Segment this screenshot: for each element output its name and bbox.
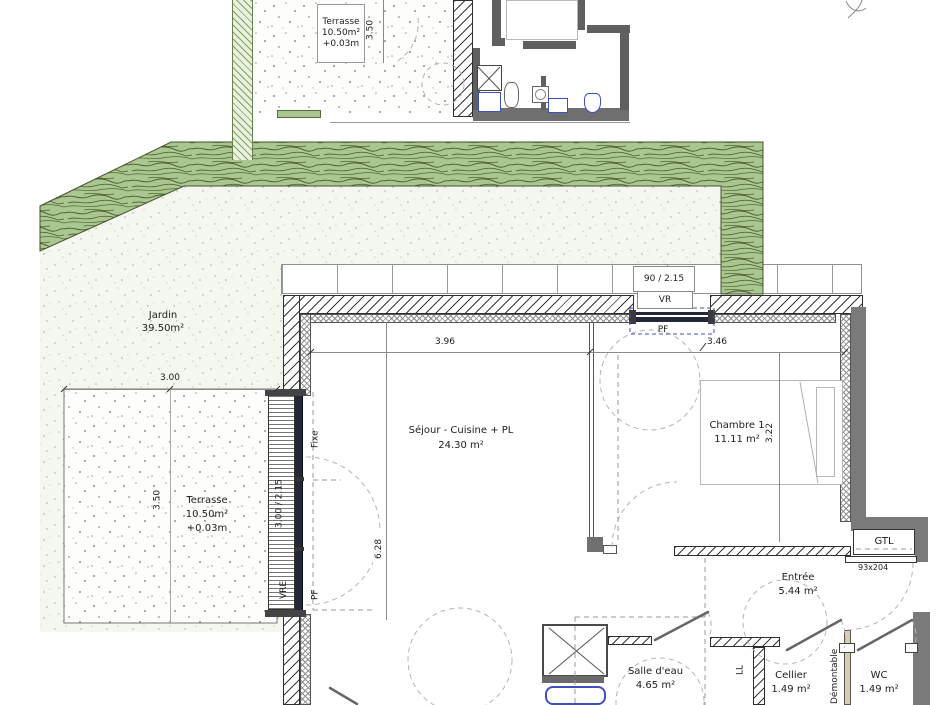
demontable-label: Démontable <box>829 648 842 705</box>
chambre-dim-width: 3.46 <box>682 337 752 348</box>
wall-salle-eau <box>608 636 652 645</box>
chambre-window-glass <box>636 312 708 322</box>
chambre-area: 11.11 m² <box>702 433 772 446</box>
dim-line-chambre <box>779 352 780 542</box>
terrace-mid-line <box>170 389 171 623</box>
chambre-window-jamb <box>708 310 715 324</box>
terrace-name: Terrasse <box>172 494 242 507</box>
gtl-box: GTL <box>853 529 915 555</box>
door-leaf-salle-eau <box>655 612 708 640</box>
washer-drum <box>535 89 546 100</box>
chambre-window-jamb <box>629 310 636 324</box>
room-level: +0.03m <box>323 39 359 50</box>
upper-bedroom-wall <box>587 25 630 33</box>
sejour-window-fixed: Fixe <box>310 418 322 460</box>
insulation-left-upper <box>300 314 311 396</box>
wall-left-lower <box>283 614 300 705</box>
duct-block <box>587 537 603 552</box>
chambre-window-shutter: VR <box>659 295 671 306</box>
sejour-window-type: PF <box>310 580 322 610</box>
bed-pillow <box>816 387 835 477</box>
upper-bedroom-wall <box>523 41 576 49</box>
upper-fixture <box>548 98 568 113</box>
upper-washer <box>532 86 549 103</box>
upper-dim-height: 3.50 <box>364 10 378 50</box>
room-area: 10.50m² <box>322 28 360 39</box>
upper-wc <box>584 93 601 113</box>
upper-planter <box>277 110 321 118</box>
wall-salle-eau-right <box>710 637 780 647</box>
door-arc-chambre <box>612 482 677 547</box>
upper-wall-stub <box>578 0 585 30</box>
dim-line-horizontal <box>311 352 845 353</box>
entree-area: 5.44 m² <box>763 585 833 598</box>
terrace-dim-height: 3.50 <box>151 478 165 522</box>
insulation-top-left <box>297 314 634 323</box>
chambre-window-type: PF <box>648 325 678 336</box>
gtl-label: GTL <box>874 535 893 548</box>
party-wall-bottom-right <box>913 612 930 705</box>
upper-terrasse-labelbox: Terrasse 10.50m² +0.03m <box>317 4 365 63</box>
partition-sejour-chambre <box>589 323 594 547</box>
upper-wall-stub <box>620 30 629 110</box>
sejour-window-glass <box>295 395 303 610</box>
upper-ground-line <box>330 122 630 123</box>
wall-left-upper <box>283 295 300 396</box>
door-arc-upper <box>396 18 418 62</box>
insulation-top-right <box>710 314 836 323</box>
terrace-dim-width: 3.00 <box>140 373 200 384</box>
door-leaf-wc <box>858 620 912 650</box>
insulation-left-lower <box>300 614 311 705</box>
entree-name: Entrée <box>763 571 833 584</box>
sejour-window-cap <box>265 610 306 617</box>
facade-joint-strip <box>281 264 862 294</box>
wall-top-left <box>283 295 634 314</box>
wall-top-right <box>710 295 863 314</box>
salle-eau-name: Salle d'eau <box>608 665 703 678</box>
bathtub <box>545 686 606 705</box>
upper-dim-line <box>383 0 384 63</box>
door-arc-sejour-1 <box>306 457 380 531</box>
sejour-window-size: 3.00 / 2.15 <box>273 452 287 556</box>
upper-hedge-strip <box>232 0 253 160</box>
wc-name: WC <box>848 669 910 682</box>
upper-sink <box>504 82 519 108</box>
sejour-name: Séjour - Cuisine + PL <box>381 424 541 437</box>
salle-eau-area: 4.65 m² <box>608 679 703 692</box>
chambre-window-shutter-box: VR <box>637 292 693 309</box>
upper-shower <box>477 65 502 91</box>
entry-door-sill <box>845 556 917 563</box>
washer-label: LL <box>735 656 747 684</box>
chambre-window-size: 90 / 2.15 <box>644 274 684 285</box>
door-leaf-sejour <box>330 688 357 704</box>
tree-sketch <box>848 0 862 18</box>
shower-wall <box>542 676 604 683</box>
door-arc-salle-eau <box>708 612 711 637</box>
floor-plan-canvas: GTL <box>0 0 940 705</box>
door-jamb <box>603 545 617 554</box>
upper-bed <box>506 0 578 40</box>
turning-circle-sejour <box>408 608 512 705</box>
cellier-area: 1.49 m² <box>758 683 824 696</box>
door-hinge-block <box>905 643 918 653</box>
chambre-name: Chambre 1 <box>702 419 772 432</box>
terrace-area: 10.50m² <box>172 508 242 521</box>
room-name: Terrasse <box>322 17 359 28</box>
sejour-area: 24.30 m² <box>381 439 541 452</box>
party-wall-right <box>851 307 866 522</box>
sejour-dim-height: 6.28 <box>373 528 386 570</box>
wc-area: 1.49 m² <box>848 683 910 696</box>
upper-bedroom-wall <box>492 38 505 46</box>
sejour-window-shutter: VRE <box>278 572 291 608</box>
jardin-area: 39.50m² <box>128 322 198 335</box>
door-leaf-cellier <box>787 620 841 650</box>
shower <box>542 624 608 677</box>
entry-door-size: 93x204 <box>858 564 910 573</box>
upper-shower-tray <box>478 92 501 112</box>
tree-sketch <box>846 1 866 11</box>
upper-wall <box>453 0 473 117</box>
jardin-name: Jardin <box>128 309 198 322</box>
sejour-dim-width: 3.96 <box>410 337 480 348</box>
chambre-window-size-box: 90 / 2.15 <box>633 266 695 292</box>
wall-chambre-entree <box>674 546 851 556</box>
sejour-window-cap <box>265 389 306 396</box>
terrace-level: +0.03m <box>172 522 242 535</box>
cellier-name: Cellier <box>758 669 824 682</box>
door-arc-entry <box>846 563 913 630</box>
dim-line-sejour <box>386 322 387 620</box>
